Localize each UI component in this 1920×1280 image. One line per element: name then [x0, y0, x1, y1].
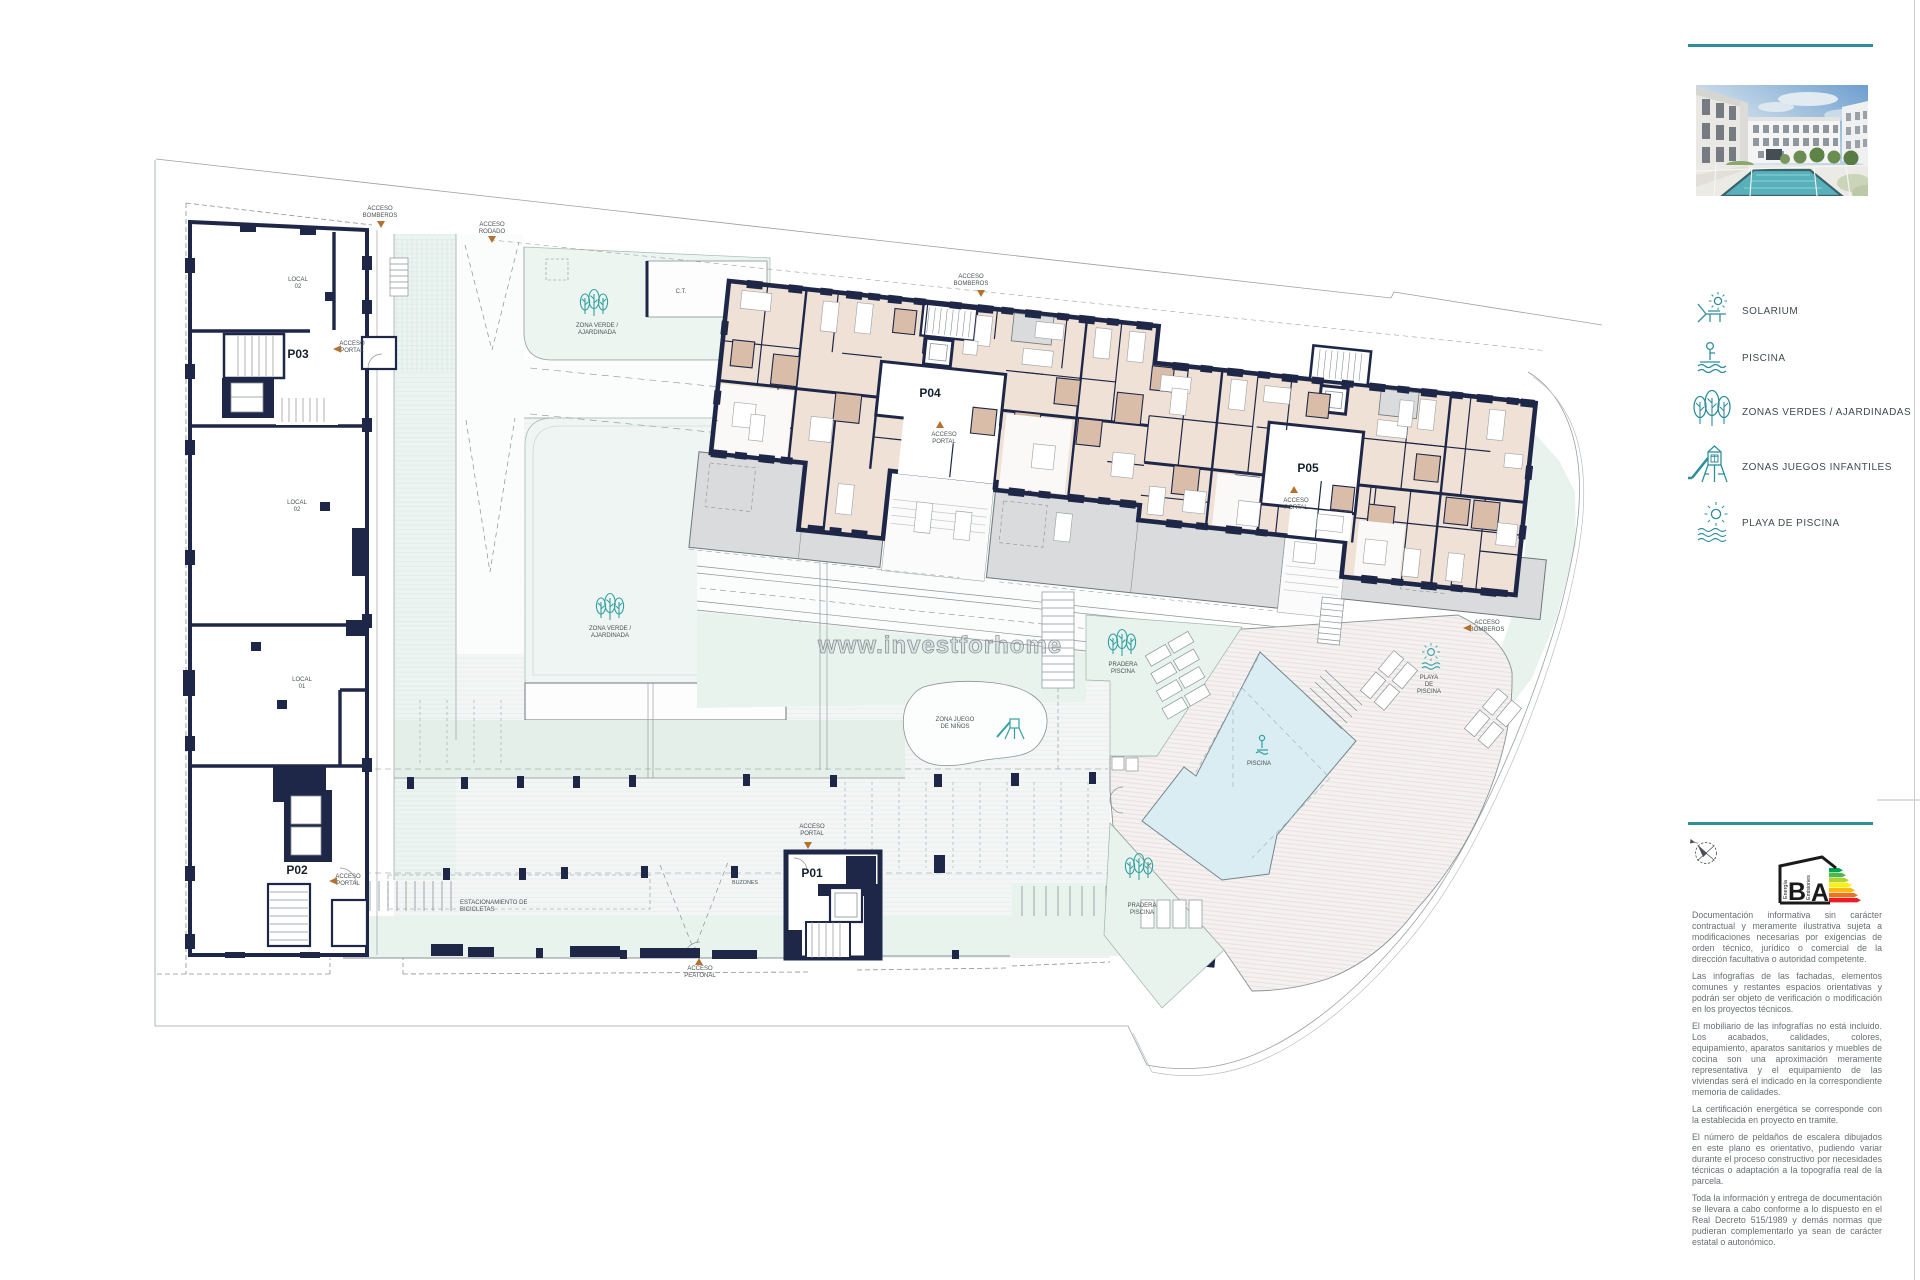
svg-text:PLAYA: PLAYA [1420, 675, 1438, 681]
svg-text:P04: P04 [919, 386, 941, 400]
svg-text:PISCINA: PISCINA [1742, 353, 1786, 364]
svg-text:PRADERA: PRADERA [1127, 903, 1156, 909]
svg-text:ZONA JUEGO: ZONA JUEGO [936, 717, 975, 723]
svg-text:PEATONAL: PEATONAL [684, 973, 716, 979]
svg-text:PISCINA: PISCINA [1111, 669, 1135, 675]
svg-text:ZONAS JUEGOS INFANTILES: ZONAS JUEGOS INFANTILES [1742, 462, 1892, 473]
svg-text:02: 02 [295, 284, 302, 290]
svg-text:ACCESO: ACCESO [799, 824, 825, 830]
svg-text:AJARDINADA: AJARDINADA [591, 633, 629, 639]
svg-text:BOMBEROS: BOMBEROS [1470, 627, 1505, 633]
svg-text:BICICLETAS: BICICLETAS [460, 907, 495, 913]
svg-text:PRADERA: PRADERA [1108, 662, 1137, 668]
svg-text:ESTACIONAMIENTO DE: ESTACIONAMIENTO DE [460, 900, 527, 906]
svg-text:LOCAL: LOCAL [288, 277, 308, 283]
svg-text:ACCESO: ACCESO [958, 274, 984, 280]
svg-text:Energía: Energía [1783, 880, 1789, 899]
svg-text:02: 02 [294, 507, 301, 513]
svg-text:www.investforhome: www.investforhome [817, 632, 1062, 659]
svg-text:PISCINA: PISCINA [1247, 761, 1271, 767]
svg-text:ACCESO: ACCESO [479, 222, 505, 228]
svg-text:PISCINA: PISCINA [1417, 689, 1441, 695]
svg-text:LOCAL: LOCAL [292, 677, 312, 683]
svg-text:Emisiones: Emisiones [1806, 875, 1812, 900]
svg-text:P05: P05 [1297, 461, 1319, 475]
svg-text:RODADO: RODADO [479, 229, 506, 235]
svg-text:ZONA VERDE /: ZONA VERDE / [576, 323, 618, 329]
svg-text:ACCESO: ACCESO [687, 966, 713, 972]
svg-text:BOMBEROS: BOMBEROS [954, 281, 989, 287]
svg-text:PORTAL: PORTAL [340, 348, 364, 354]
svg-text:PORTAL: PORTAL [932, 439, 956, 445]
svg-text:AJARDINADA: AJARDINADA [578, 330, 616, 336]
svg-text:DE: DE [1425, 682, 1433, 688]
svg-text:BUZONES: BUZONES [732, 880, 758, 886]
svg-text:ACCESO: ACCESO [339, 341, 365, 347]
svg-text:P03: P03 [287, 347, 309, 361]
svg-text:ACCESO: ACCESO [367, 206, 393, 212]
svg-text:PORTAL: PORTAL [1284, 505, 1308, 511]
svg-text:ACCESO: ACCESO [1283, 498, 1309, 504]
svg-text:A: A [1811, 879, 1829, 907]
svg-text:SOLARIUM: SOLARIUM [1742, 306, 1798, 317]
svg-text:P01: P01 [801, 866, 823, 880]
svg-text:P02: P02 [286, 863, 308, 877]
svg-text:BOMBEROS: BOMBEROS [363, 213, 398, 219]
svg-text:PLAYA DE PISCINA: PLAYA DE PISCINA [1742, 518, 1840, 529]
svg-text:C.T.: C.T. [676, 289, 687, 295]
svg-text:DE NIÑOS: DE NIÑOS [940, 723, 969, 730]
svg-text:ACCESO: ACCESO [335, 874, 361, 880]
svg-text:ZONAS VERDES / AJARDINADAS: ZONAS VERDES / AJARDINADAS [1742, 407, 1911, 418]
svg-text:LOCAL: LOCAL [287, 500, 307, 506]
svg-text:01: 01 [299, 684, 306, 690]
svg-text:PISCINA: PISCINA [1130, 910, 1154, 916]
svg-text:B: B [1788, 878, 1806, 906]
svg-text:ACCESO: ACCESO [931, 432, 957, 438]
svg-text:PORTAL: PORTAL [336, 881, 360, 887]
svg-text:ACCESO: ACCESO [1474, 620, 1500, 626]
svg-text:ZONA VERDE /: ZONA VERDE / [589, 626, 631, 632]
svg-text:PORTAL: PORTAL [800, 831, 824, 837]
